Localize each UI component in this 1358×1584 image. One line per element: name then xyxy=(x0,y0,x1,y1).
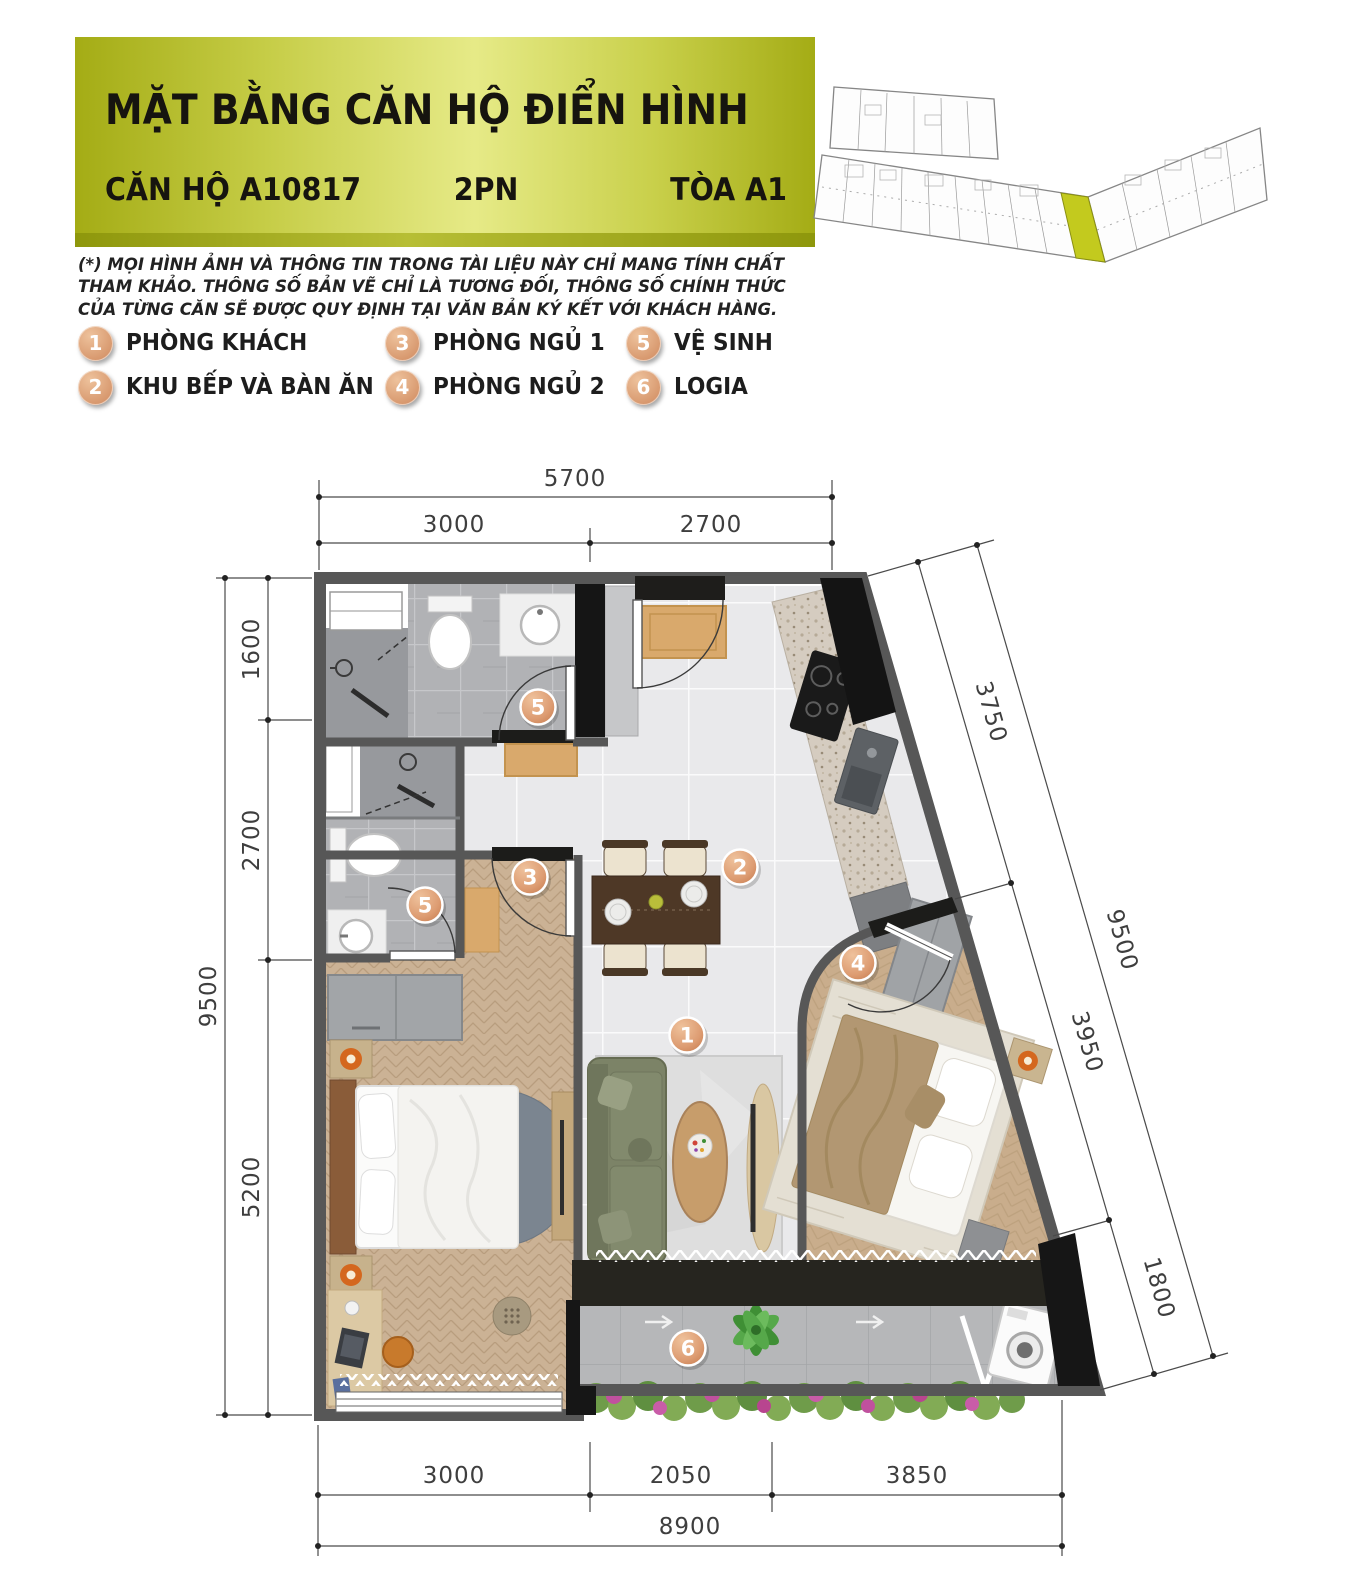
toilet-icon xyxy=(429,615,471,669)
dim-left-total: 9500 xyxy=(196,965,222,1028)
dining-chair xyxy=(604,846,646,876)
svg-text:5: 5 xyxy=(418,894,433,918)
bath1-door-leaf xyxy=(566,666,575,740)
floorplan-sheet: MẶT BẰNG CĂN HỘ ĐIỂN HÌNH CĂN HỘ A10817 … xyxy=(0,0,1358,1584)
legend-marker-5: 5 xyxy=(626,326,661,361)
bath-threshold xyxy=(492,730,573,743)
vase xyxy=(649,895,663,909)
header-subtitle: CĂN HỘ A10817 2PN TÒA A1 xyxy=(105,172,787,208)
legend-marker-6: 6 xyxy=(626,370,661,405)
dim-top-total: 5700 xyxy=(544,466,607,492)
curtain-zigzag xyxy=(340,1374,558,1386)
bedroom1-window xyxy=(336,1392,562,1412)
door-rug xyxy=(465,888,499,952)
legend-item-bedroom1: 3 PHÒNG NGỦ 1 xyxy=(385,323,616,363)
dim-bottom-total: 8900 xyxy=(659,1514,722,1540)
dim-left-seg3: 5200 xyxy=(239,1156,265,1219)
legend-item-kitchen: 2 KHU BẾP VÀ BÀN ĂN xyxy=(78,367,390,407)
plate xyxy=(605,899,631,925)
dining-chair xyxy=(664,942,706,972)
bedroom-count: 2PN xyxy=(454,172,519,208)
wardrobe xyxy=(328,975,462,1040)
plate xyxy=(681,881,707,907)
stool xyxy=(383,1337,413,1367)
legend-marker-3: 3 xyxy=(385,326,420,361)
column xyxy=(575,584,605,737)
unit-code: CĂN HỘ A10817 xyxy=(105,172,361,208)
svg-text:6: 6 xyxy=(681,1337,696,1361)
page-title: MẶT BẰNG CĂN HỘ ĐIỂN HÌNH xyxy=(105,85,749,134)
dim-top-seg1: 3000 xyxy=(423,512,486,538)
room-legend: 1 PHÒNG KHÁCH 2 KHU BẾP VÀ BÀN ĂN 3 PHÒN… xyxy=(78,323,823,419)
entry-threshold xyxy=(635,576,725,600)
dim-right-seg3: 1800 xyxy=(1138,1254,1180,1321)
column xyxy=(566,1300,580,1390)
dim-bottom-seg1: 3000 xyxy=(423,1463,486,1489)
logia-wall-band xyxy=(572,1260,1062,1306)
dining-chair xyxy=(604,942,646,972)
legend-marker-2: 2 xyxy=(78,370,113,405)
legend-marker-1: 1 xyxy=(78,326,113,361)
toilet-tank xyxy=(428,596,472,612)
dim-left-seg1: 1600 xyxy=(239,618,265,681)
window xyxy=(326,744,352,812)
svg-text:4: 4 xyxy=(851,952,866,976)
dim-bottom-seg2: 2050 xyxy=(650,1463,713,1489)
svg-text:2: 2 xyxy=(733,856,748,880)
faucet-dot xyxy=(537,609,543,615)
header-accent-strip xyxy=(75,233,815,247)
legend-marker-4: 4 xyxy=(385,370,420,405)
bedroom1-door-leaf xyxy=(566,860,575,936)
tower-label: TÒA A1 xyxy=(670,172,787,208)
building-overview-map xyxy=(805,60,1310,265)
bed xyxy=(330,1080,518,1254)
svg-text:5: 5 xyxy=(531,696,546,720)
coffee-table xyxy=(673,1102,727,1222)
header-banner: MẶT BẰNG CĂN HỘ ĐIỂN HÌNH CĂN HỘ A10817 … xyxy=(75,37,815,233)
sofa xyxy=(588,1058,666,1264)
dim-right-total: 9500 xyxy=(1101,906,1143,973)
entry-door-leaf xyxy=(633,600,642,688)
bath2-door-leaf xyxy=(390,951,455,960)
dining-chair xyxy=(664,846,706,876)
hall-rug xyxy=(505,744,577,776)
dim-top-seg2: 2700 xyxy=(680,512,743,538)
svg-text:3: 3 xyxy=(523,866,538,890)
column xyxy=(566,1386,596,1415)
legend-item-bedroom2: 4 PHÒNG NGỦ 2 xyxy=(385,367,616,407)
dimensions-bottom: 3000 2050 3850 8900 xyxy=(315,1400,1065,1556)
apartment-floor-plan: 1 2 3 4 5 xyxy=(170,430,1290,1580)
dim-left-seg2: 2700 xyxy=(239,809,265,872)
living-room xyxy=(588,1056,782,1268)
dimensions-left: 9500 1600 2700 5200 xyxy=(196,575,312,1418)
disclaimer-note: (*) MỌI HÌNH ẢNH VÀ THÔNG TIN TRONG TÀI … xyxy=(78,254,804,321)
legend-item-living: 1 PHÒNG KHÁCH xyxy=(78,323,319,363)
dim-bottom-seg3: 3850 xyxy=(886,1463,949,1489)
building-outline xyxy=(814,87,1267,262)
curtain-zigzag xyxy=(596,1250,1036,1262)
dim-right-seg2: 3950 xyxy=(1066,1008,1108,1075)
desk xyxy=(328,1290,382,1406)
legend-item-logia: 6 LOGIA xyxy=(626,367,753,407)
legend-item-bathroom: 5 VỆ SINH xyxy=(626,323,779,363)
dimensions-top: 5700 3000 2700 xyxy=(316,466,835,570)
svg-text:1: 1 xyxy=(680,1024,695,1048)
pouf xyxy=(493,1297,531,1335)
dim-right-seg1: 3750 xyxy=(970,678,1012,745)
